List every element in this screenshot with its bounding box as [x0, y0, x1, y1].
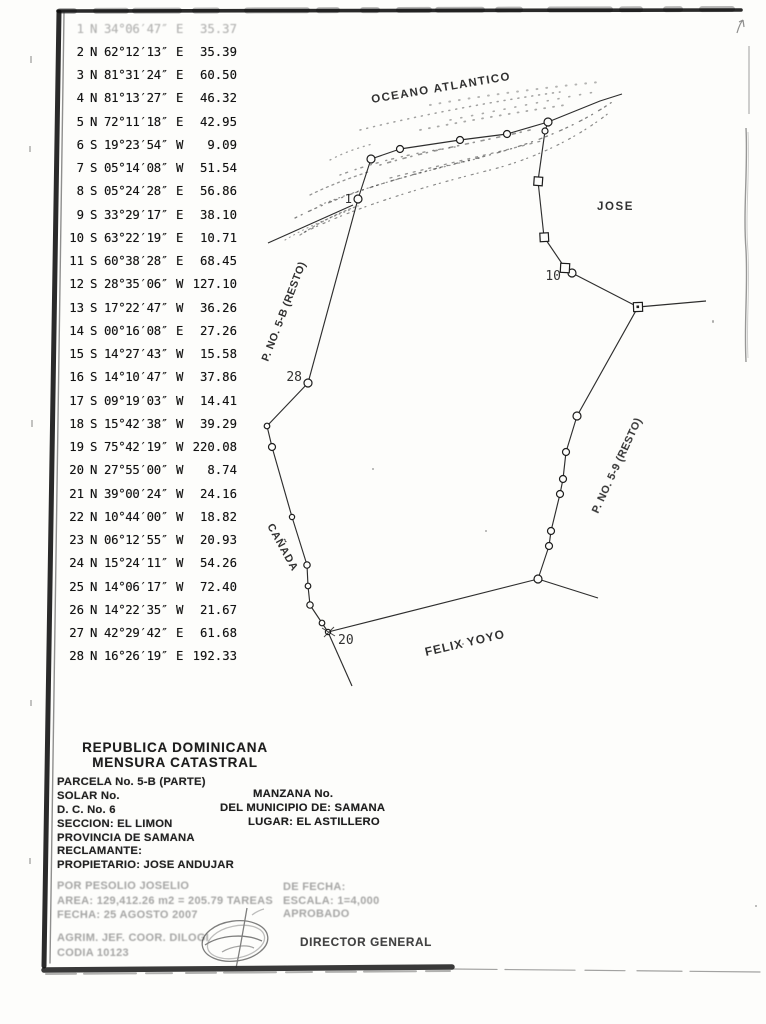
scanned-document-page: OCEANO ATLANTICO JOSE P. NO. 5-B (RESTO)… [0, 0, 766, 1024]
form-title-survey: MENSURA CATASTRAL [70, 755, 280, 770]
course-number: 11 [60, 254, 84, 268]
course-ew: E [176, 208, 191, 222]
course-number: 22 [60, 510, 84, 524]
course-ew: W [176, 370, 191, 384]
course-ns: S [90, 417, 104, 431]
course-ew: W [176, 463, 191, 477]
course-distance: 8.74 [191, 463, 237, 477]
course-ew: W [176, 556, 191, 570]
course-number: 4 [60, 91, 84, 105]
course-angle: 05°24′28″ [104, 184, 176, 198]
course-angle: 15°42′38″ [104, 417, 176, 431]
parcel-boundary [267, 94, 706, 686]
course-ew: W [176, 138, 191, 152]
form-field-faded: DE FECHA: [283, 881, 380, 895]
course-angle: 81°13′27″ [104, 91, 176, 105]
form-field: DEL MUNICIPIO DE: SAMANA [220, 802, 385, 814]
course-distance: 46.32 [191, 91, 237, 105]
course-number: 19 [60, 440, 84, 454]
bearing-row: 19 S 75°42′19″ W 220.08 [60, 436, 240, 459]
course-distance: 60.50 [191, 68, 237, 82]
course-ew: W [176, 580, 191, 594]
course-ns: N [90, 463, 104, 477]
shoreline-stippling [285, 82, 615, 240]
corner-arrow-mark [737, 20, 744, 33]
course-ns: N [90, 603, 104, 617]
course-distance: 68.45 [191, 254, 237, 268]
course-distance: 21.67 [191, 603, 237, 617]
course-ns: N [90, 626, 104, 640]
scan-speck [462, 643, 464, 645]
form-field-faded: APROBADO [283, 908, 380, 922]
course-ns: N [90, 580, 104, 594]
parcel-59-label: P. NO. 5-9 (RESTO) [590, 416, 645, 515]
course-angle: 06°12′55″ [104, 533, 176, 547]
course-angle: 15°24′11″ [104, 556, 176, 570]
course-angle: 62°12′13″ [104, 45, 176, 59]
course-ns: N [90, 556, 104, 570]
course-ns: S [90, 254, 104, 268]
road-spur-east [638, 301, 706, 307]
course-ew: W [176, 533, 191, 547]
course-number: 7 [60, 161, 84, 175]
course-number: 26 [60, 603, 84, 617]
course-ew: W [176, 603, 191, 617]
course-distance: 39.29 [191, 417, 237, 431]
bearing-row: 23 N 06°12′55″ W 20.93 [60, 529, 240, 552]
course-ew: E [176, 91, 191, 105]
course-ew: W [176, 510, 191, 524]
jose-label: JOSE [597, 201, 634, 213]
course-distance: 192.33 [191, 649, 237, 663]
course-ns: N [90, 115, 104, 129]
course-number: 16 [60, 370, 84, 384]
course-angle: 27°55′00″ [104, 463, 176, 477]
course-ew: E [176, 324, 191, 338]
course-number: 9 [60, 208, 84, 222]
course-number: 2 [60, 45, 84, 59]
course-distance: 127.10 [191, 277, 237, 291]
form-field-faded: POR PESOLIO JOSELIO [57, 880, 273, 895]
course-ew: E [176, 22, 191, 36]
bearing-row: 21 N 39°00′24″ W 24.16 [60, 482, 240, 505]
scan-speck [712, 320, 714, 323]
course-number: 5 [60, 115, 84, 129]
course-number: 13 [60, 301, 84, 315]
bearing-row: 25 N 14°06′17″ W 72.40 [60, 575, 240, 598]
course-number: 28 [60, 649, 84, 663]
director-general-label: DIRECTOR GENERAL [300, 935, 432, 949]
course-ns: N [90, 649, 104, 663]
course-ns: N [90, 91, 104, 105]
bearing-row: 17 S 09°19′03″ W 14.41 [60, 389, 240, 412]
bearing-table: 1 N 34°06′47″ E 35.37 2 N 62°12′13″ E 35… [60, 17, 240, 668]
course-ns: N [90, 487, 104, 501]
course-distance: 9.09 [191, 138, 237, 152]
form-field: RECLAMANTE: [57, 845, 234, 859]
course-distance: 10.71 [191, 231, 237, 245]
bearing-row: 27 N 42°29′42″ E 61.68 [60, 622, 240, 645]
course-ns: S [90, 324, 104, 338]
course-number: 15 [60, 347, 84, 361]
course-distance: 38.10 [191, 208, 237, 222]
vertex-28-label: 28 [286, 370, 302, 385]
map-labels: OCEANO ATLANTICO JOSE P. NO. 5-B (RESTO)… [260, 71, 645, 659]
bearing-row: 5 N 72°11′18″ E 42.95 [60, 110, 240, 133]
bearing-row: 14 S 00°16′08″ E 27.26 [60, 319, 240, 342]
bearing-row: 20 N 27°55′00″ W 8.74 [60, 459, 240, 482]
bearing-row: 9 S 33°29′17″ E 38.10 [60, 203, 240, 226]
form-field-faded: AREA: 129,412.26 m2 = 205.79 TAREAS [57, 895, 273, 910]
course-angle: 17°22′47″ [104, 301, 176, 315]
course-ns: S [90, 301, 104, 315]
bearing-row: 11 S 60°38′28″ E 68.45 [60, 250, 240, 273]
course-angle: 19°23′54″ [104, 138, 176, 152]
bearing-row: 6 S 19°23′54″ W 9.09 [60, 133, 240, 156]
course-distance: 20.93 [191, 533, 237, 547]
course-number: 21 [60, 487, 84, 501]
bearing-row: 2 N 62°12′13″ E 35.39 [60, 40, 240, 63]
course-number: 27 [60, 626, 84, 640]
form-title-country: REPUBLICA DOMINICANA [70, 740, 280, 755]
bearing-row: 4 N 81°13′27″ E 46.32 [60, 87, 240, 110]
parcel-5b-label: P. NO. 5-B (RESTO) [260, 260, 309, 363]
bearing-row: 1 N 34°06′47″ E 35.37 [60, 17, 240, 40]
course-angle: 14°06′17″ [104, 580, 176, 594]
course-distance: 54.26 [191, 556, 237, 570]
course-ew: W [176, 277, 191, 291]
course-ew: E [176, 184, 191, 198]
course-ns: N [90, 533, 104, 547]
course-distance: 24.16 [191, 487, 237, 501]
course-ns: S [90, 277, 104, 291]
bearing-row: 24 N 15°24′11″ W 54.26 [60, 552, 240, 575]
course-angle: 63°22′19″ [104, 231, 176, 245]
bearing-row: 16 S 14°10′47″ W 37.86 [60, 366, 240, 389]
course-angle: 16°26′19″ [104, 649, 176, 663]
course-distance: 35.37 [191, 22, 237, 36]
course-distance: 220.08 [191, 440, 237, 454]
course-number: 10 [60, 231, 84, 245]
vertex-markers-squares [534, 177, 643, 312]
course-distance: 37.86 [191, 370, 237, 384]
course-angle: 42°29′42″ [104, 626, 176, 640]
surveyor-signature-line: AGRIM. JEF. COOR. DILOGI [57, 932, 209, 944]
course-angle: 28°35′06″ [104, 277, 176, 291]
course-angle: 14°27′43″ [104, 347, 176, 361]
course-distance: 14.41 [191, 394, 237, 408]
course-distance: 18.82 [191, 510, 237, 524]
ocean-label: OCEANO ATLANTICO [371, 71, 512, 106]
course-ew: E [176, 231, 191, 245]
course-angle: 75°42′19″ [104, 440, 176, 454]
course-number: 24 [60, 556, 84, 570]
scan-speck [485, 530, 487, 532]
course-number: 18 [60, 417, 84, 431]
felix-yoyo-label: FELIX YOYO [424, 627, 507, 659]
course-number: 25 [60, 580, 84, 594]
course-number: 1 [60, 22, 84, 36]
course-ns: S [90, 440, 104, 454]
form-field: PROVINCIA DE SAMANA [57, 832, 234, 846]
scan-speck [372, 468, 374, 470]
course-number: 17 [60, 394, 84, 408]
bearing-row: 8 S 05°24′28″ E 56.86 [60, 180, 240, 203]
course-distance: 15.58 [191, 347, 237, 361]
course-distance: 35.39 [191, 45, 237, 59]
course-angle: 00°16′08″ [104, 324, 176, 338]
form-field: PARCELA No. 5-B (PARTE) [57, 776, 234, 790]
course-distance: 61.68 [191, 626, 237, 640]
bearing-row: 7 S 05°14′08″ W 51.54 [60, 157, 240, 180]
course-ns: S [90, 138, 104, 152]
course-number: 23 [60, 533, 84, 547]
course-number: 6 [60, 138, 84, 152]
bearing-row: 15 S 14°27′43″ W 15.58 [60, 343, 240, 366]
course-ns: N [90, 22, 104, 36]
form-field-faded: FECHA: 25 AGOSTO 2007 [57, 909, 273, 924]
course-number: 8 [60, 184, 84, 198]
course-ew: W [176, 440, 191, 454]
codia-number-line: CODIA 10123 [57, 947, 129, 959]
course-ns: S [90, 347, 104, 361]
course-ns: S [90, 370, 104, 384]
boundary-spur-southeast [538, 579, 598, 598]
form-field: SOLAR No. [57, 790, 234, 804]
form-field: D. C. No. 6 [57, 804, 234, 818]
course-angle: 05°14′08″ [104, 161, 176, 175]
course-ew: W [176, 417, 191, 431]
course-angle: 10°44′00″ [104, 510, 176, 524]
form-field: LUGAR: EL ASTILLERO [248, 816, 380, 828]
course-ns: S [90, 184, 104, 198]
vertex-markers-circles [264, 118, 581, 637]
course-distance: 36.26 [191, 301, 237, 315]
form-fields-faded-left: POR PESOLIO JOSELIOAREA: 129,412.26 m2 =… [57, 880, 273, 924]
course-angle: 39°00′24″ [104, 487, 176, 501]
course-distance: 27.26 [191, 324, 237, 338]
form-field: SECCION: EL LIMON [57, 818, 234, 832]
course-ew: E [176, 45, 191, 59]
course-ns: S [90, 208, 104, 222]
course-ew: E [176, 254, 191, 268]
bearing-row: 26 N 14°22′35″ W 21.67 [60, 598, 240, 621]
course-number: 14 [60, 324, 84, 338]
course-ns: N [90, 510, 104, 524]
vertex-20-label: 20 [338, 633, 354, 648]
vertex-10-label: 10 [545, 269, 561, 284]
bearing-row: 28 N 16°26′19″ E 192.33 [60, 645, 240, 668]
course-ns: N [90, 68, 104, 82]
bearing-row: 22 N 10°44′00″ W 18.82 [60, 505, 240, 528]
course-angle: 60°38′28″ [104, 254, 176, 268]
course-ew: W [176, 347, 191, 361]
form-field-faded: ESCALA: 1=4,000 [283, 895, 380, 909]
course-ew: W [176, 394, 191, 408]
course-ew: W [176, 487, 191, 501]
course-distance: 51.54 [191, 161, 237, 175]
course-ns: S [90, 394, 104, 408]
bearing-row: 10 S 63°22′19″ E 10.71 [60, 226, 240, 249]
course-ew: E [176, 115, 191, 129]
course-angle: 14°10′47″ [104, 370, 176, 384]
bearing-row: 13 S 17°22′47″ W 36.26 [60, 296, 240, 319]
form-fields-left: PARCELA No. 5-B (PARTE)SOLAR No.D. C. No… [57, 776, 234, 873]
vertex-20-scribble [322, 627, 335, 637]
course-distance: 56.86 [191, 184, 237, 198]
course-ew: W [176, 301, 191, 315]
course-ew: W [176, 161, 191, 175]
course-angle: 72°11′18″ [104, 115, 176, 129]
course-ns: N [90, 45, 104, 59]
course-ew: E [176, 649, 191, 663]
form-field: MANZANA No. [253, 788, 333, 800]
bearing-row: 12 S 28°35′06″ W 127.10 [60, 273, 240, 296]
course-angle: 33°29′17″ [104, 208, 176, 222]
course-ew: E [176, 68, 191, 82]
course-ew: E [176, 626, 191, 640]
course-distance: 42.95 [191, 115, 237, 129]
course-angle: 14°22′35″ [104, 603, 176, 617]
course-distance: 72.40 [191, 580, 237, 594]
course-ns: S [90, 161, 104, 175]
course-number: 3 [60, 68, 84, 82]
form-field: PROPIETARIO: JOSE ANDUJAR [57, 859, 234, 873]
form-fields-faded-right: DE FECHA:ESCALA: 1=4,000APROBADO [283, 881, 380, 922]
bearing-row: 18 S 15°42′38″ W 39.29 [60, 412, 240, 435]
bearing-row: 3 N 81°31′24″ E 60.50 [60, 64, 240, 87]
course-angle: 81°31′24″ [104, 68, 176, 82]
course-angle: 09°19′03″ [104, 394, 176, 408]
vertex-1-label: 1 [344, 191, 352, 206]
course-angle: 34°06′47″ [104, 22, 176, 36]
course-number: 20 [60, 463, 84, 477]
course-ns: S [90, 231, 104, 245]
course-number: 12 [60, 277, 84, 291]
scan-speck [755, 905, 757, 907]
